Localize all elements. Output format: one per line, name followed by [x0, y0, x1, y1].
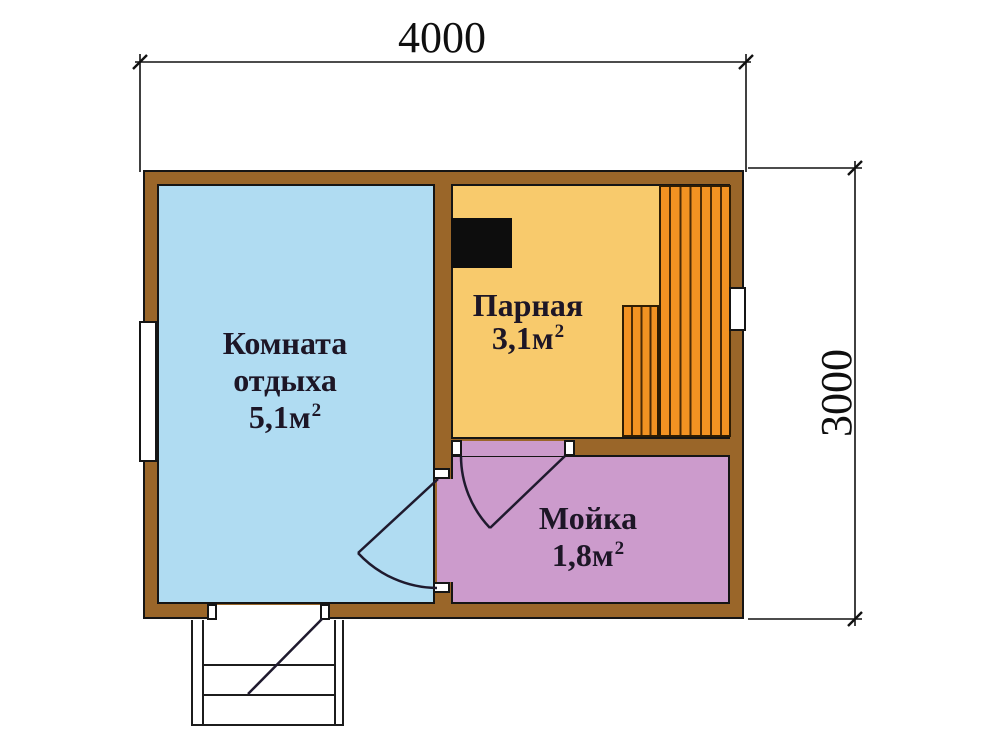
tick-mark: [133, 55, 147, 69]
tick-mark: [848, 612, 862, 626]
doorway-exterior: [217, 605, 320, 620]
door-jamb: [320, 604, 330, 620]
room-rest-name-line2: отдыха: [185, 362, 385, 399]
dimension-width-label: 4000: [342, 12, 542, 60]
door-leaf-exterior-overlay: [248, 619, 322, 694]
room-steam-name: Парная: [428, 289, 628, 322]
door-jamb: [564, 440, 575, 456]
superscript: 2: [615, 538, 625, 559]
dimension-height-label: 3000: [811, 293, 859, 493]
room-label-wash: Мойка 1,8м2: [488, 500, 688, 579]
door-jamb: [451, 440, 462, 456]
room-wash-name: Мойка: [488, 500, 688, 537]
bench-upper-tier: [659, 185, 731, 437]
superscript: 2: [555, 321, 565, 342]
room-label-rest: Комната отдыха 5,1м2: [185, 325, 385, 441]
doorway-steam-to-wash: [462, 441, 564, 456]
window-left-wall: [139, 321, 157, 462]
door-jamb: [433, 582, 450, 593]
room-rest-name-line1: Комната: [185, 325, 385, 362]
door-arc-exterior: [214, 621, 248, 694]
door-jamb: [433, 468, 450, 479]
door-jamb: [207, 604, 217, 620]
door-leaf-exterior: [248, 619, 322, 694]
doorway-rest-to-wash: [437, 479, 455, 582]
room-rest-area: 5,1м2: [185, 399, 385, 441]
sauna-floorplan: 4000 3000 Комната отдыха 5,1м2 Парная 3,…: [0, 0, 1000, 739]
tick-mark: [848, 161, 862, 175]
room-label-steam: Парная 3,1м2: [428, 289, 628, 360]
porch-outline: [192, 620, 343, 725]
window-right-wall: [729, 287, 746, 331]
room-steam-area: 3,1м2: [428, 322, 628, 360]
stove: [451, 218, 512, 268]
superscript: 2: [312, 400, 322, 421]
room-wash-area: 1,8м2: [488, 537, 688, 579]
tick-mark: [739, 55, 753, 69]
